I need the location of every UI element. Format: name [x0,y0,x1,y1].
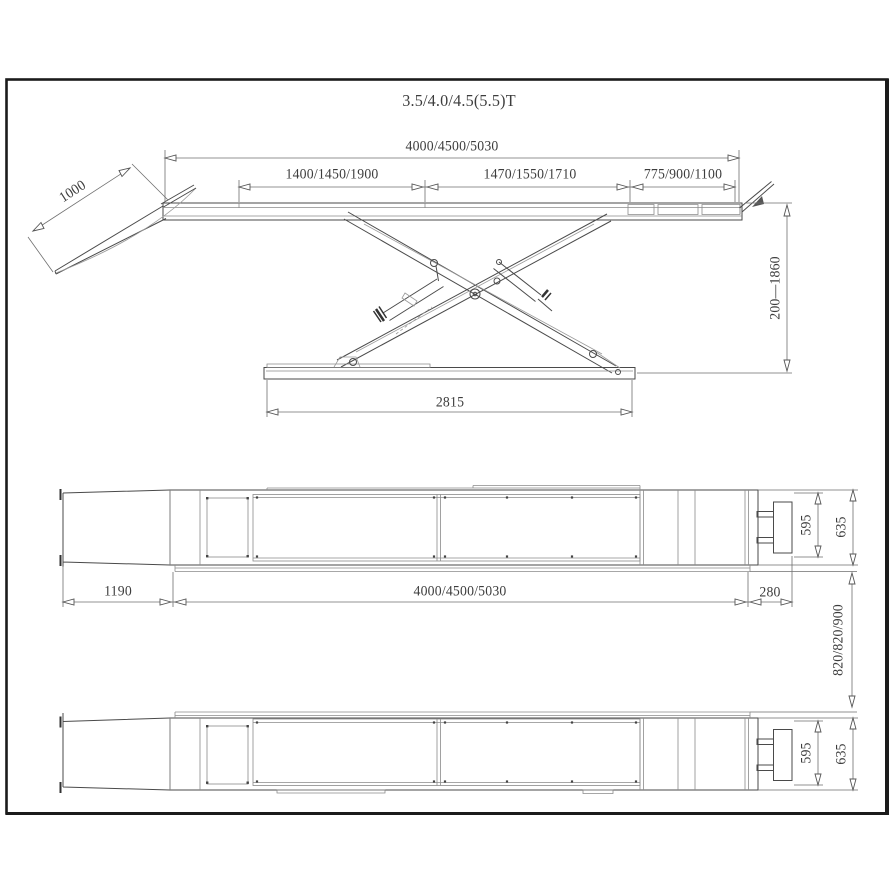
dim-segment-right-label: 775/900/1100 [644,167,722,184]
drawing-linework [0,0,896,896]
plan-view-top-dimensions [63,490,858,712]
side-view-dimensions [28,150,792,417]
dim-plan-platform-length-label: 4000/4500/5030 [414,584,507,601]
dim-platform-width-bottom-label: 635 [834,743,851,764]
dim-lift-height-label: 200—1860 [768,256,785,320]
drawing-frame [6,79,889,815]
side-view-linework [55,182,774,380]
dim-plate-width-top-label: 595 [799,514,816,535]
dim-plate-width-bottom-label: 595 [799,742,816,763]
plan-view-bottom-linework [61,712,793,794]
dim-segment-middle-label: 1470/1550/1710 [484,167,577,184]
dim-plan-ramp-label: 1190 [104,584,132,601]
panel-fastener-dots [256,496,637,557]
dim-platform-width-top-label: 635 [834,516,851,537]
dim-segment-left-label: 1400/1450/1900 [286,167,379,184]
dim-plan-rear-extension-label: 280 [759,585,780,602]
drawing-canvas: 3.5/4.0/4.5(5.5)T 4000/4500/5030 1400/14… [0,0,896,896]
panel-fastener-dots [256,721,637,782]
plan-view-top-linework [61,486,793,572]
dim-total-length-label: 4000/4500/5030 [406,139,499,156]
dim-track-gap-label: 820/820/900 [831,604,848,676]
drawing-title: 3.5/4.0/4.5(5.5)T [402,91,516,111]
dim-base-length-label: 2815 [436,395,464,412]
